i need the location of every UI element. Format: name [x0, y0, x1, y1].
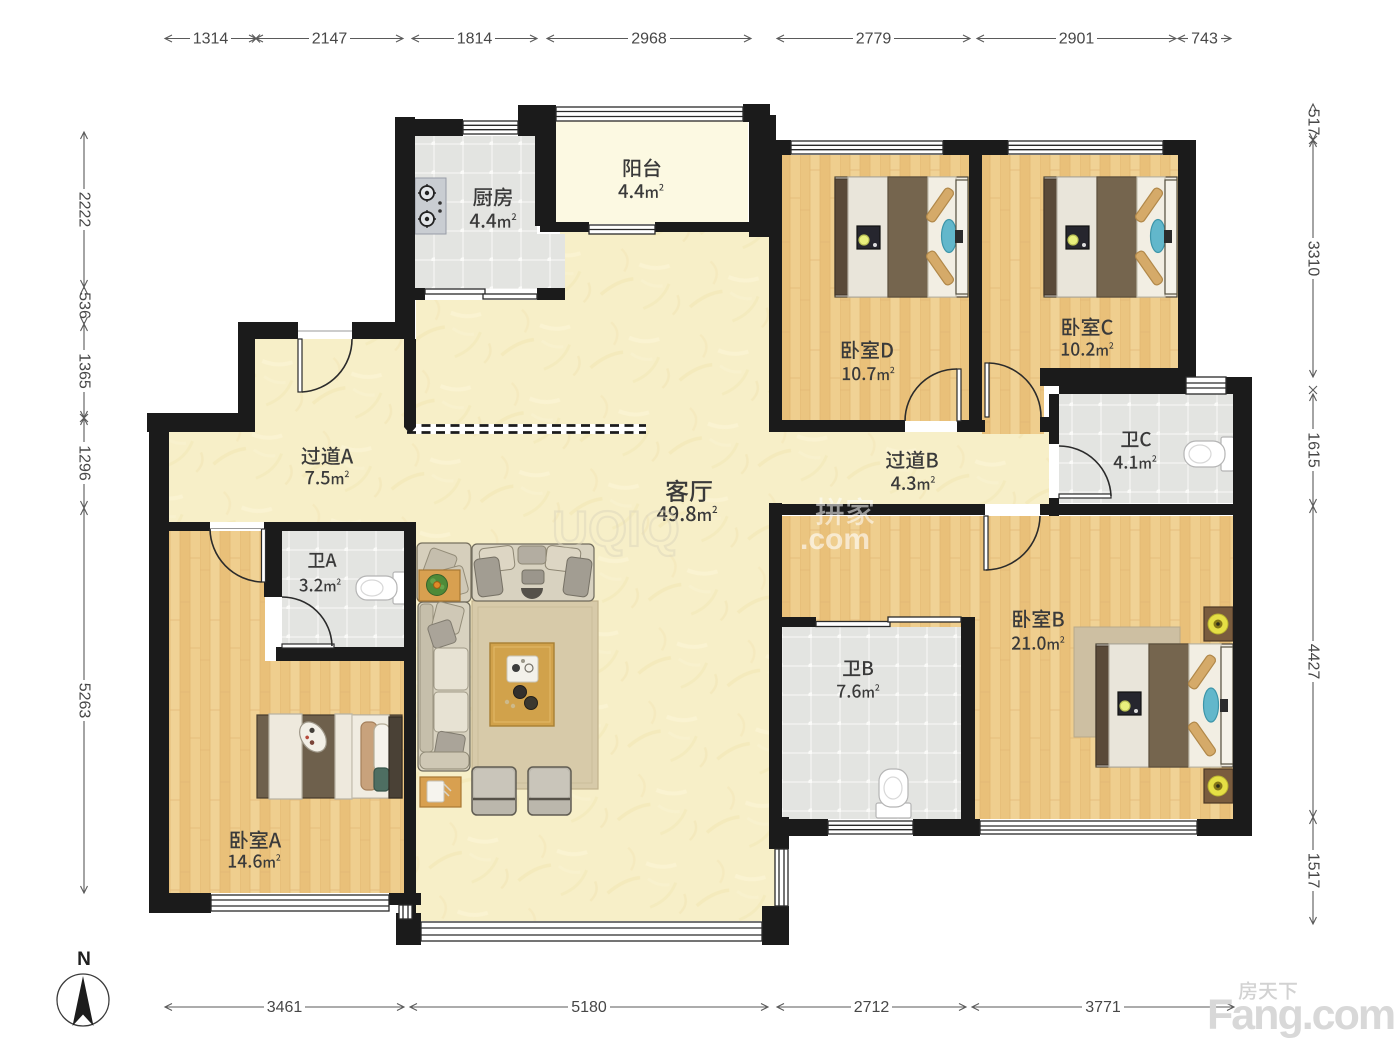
svg-text:2712: 2712 — [854, 999, 890, 1016]
svg-text:2779: 2779 — [856, 31, 892, 48]
svg-text:2147: 2147 — [312, 31, 348, 48]
svg-text:1365: 1365 — [76, 353, 93, 389]
svg-text:5180: 5180 — [571, 999, 607, 1016]
svg-text:743: 743 — [1191, 31, 1218, 48]
svg-text:517: 517 — [1305, 109, 1322, 136]
svg-text:536: 536 — [76, 292, 93, 319]
svg-text:UQIQ: UQIQ — [552, 501, 680, 557]
svg-text:1517: 1517 — [1305, 853, 1322, 889]
svg-text:4427: 4427 — [1305, 644, 1322, 680]
svg-text:3461: 3461 — [267, 999, 303, 1016]
svg-text:2901: 2901 — [1059, 31, 1095, 48]
svg-text:1314: 1314 — [193, 31, 229, 48]
svg-text:3771: 3771 — [1085, 999, 1121, 1016]
svg-text:1296: 1296 — [76, 445, 93, 481]
svg-text:N: N — [77, 949, 91, 970]
svg-text:1814: 1814 — [457, 31, 493, 48]
svg-text:Fang.com: Fang.com — [1207, 991, 1394, 1039]
svg-text:5263: 5263 — [76, 683, 93, 719]
svg-text:1615: 1615 — [1305, 432, 1322, 468]
svg-text:3310: 3310 — [1305, 241, 1322, 277]
svg-text:.com: .com — [800, 523, 870, 556]
svg-text:2222: 2222 — [76, 192, 93, 228]
svg-text:2968: 2968 — [631, 31, 667, 48]
